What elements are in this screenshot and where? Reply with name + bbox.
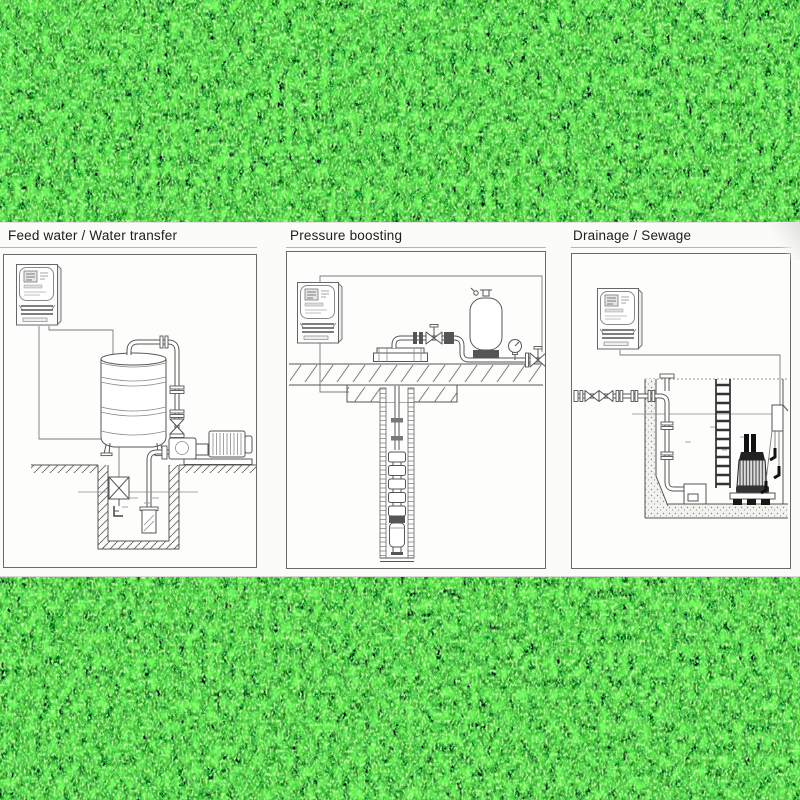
- foot-valve: [140, 507, 158, 533]
- diagram-pressure-boosting: [286, 251, 546, 569]
- pump-controller: [598, 289, 643, 350]
- title-rule: [286, 247, 546, 248]
- concrete-slab: [289, 364, 543, 402]
- gate-valve: [170, 419, 184, 427]
- wellhead-flange: [374, 348, 428, 362]
- gate-valve: [585, 391, 592, 402]
- title-rule: [0, 247, 257, 248]
- pump-intake: [389, 516, 405, 523]
- tee-blind-flange: [660, 374, 674, 378]
- access-ladder: [716, 379, 730, 488]
- gate-valve: [599, 391, 606, 402]
- submersible-sewage-pump: [730, 434, 775, 505]
- hatched-ground: [31, 465, 256, 473]
- strip-corner-curl: [766, 222, 800, 260]
- auto-coupling-base: [684, 484, 706, 504]
- pump-controller: [17, 265, 62, 326]
- discharge-manifold: [574, 374, 684, 489]
- check-valve: [444, 332, 454, 344]
- base-plate: [184, 459, 252, 465]
- title-rule: [571, 247, 791, 248]
- gate-valve: [426, 332, 434, 344]
- diagram-feed-water-transfer: [3, 254, 257, 568]
- panel-title-feed-water: Feed water / Water transfer: [8, 228, 177, 243]
- pump-controller: [298, 283, 343, 344]
- pump-motor: [390, 523, 405, 547]
- submersible-multistage-pump: [389, 386, 406, 555]
- panel-title-pressure-boosting: Pressure boosting: [290, 228, 402, 243]
- catalog-strip: Feed water / Water transfer Pressure boo…: [0, 222, 800, 577]
- pressure-gauge: [509, 340, 522, 361]
- diaphragm-pressure-tank: [470, 288, 502, 358]
- diagram-drainage-sewage: [571, 253, 791, 569]
- panel-title-drainage-sewage: Drainage / Sewage: [573, 228, 691, 243]
- coupling: [196, 444, 208, 455]
- float-switch: [109, 477, 129, 516]
- storage-tank: [101, 353, 166, 456]
- tank-base: [473, 350, 499, 358]
- turf-catalog-image: Feed water / Water transfer Pressure boo…: [0, 0, 800, 800]
